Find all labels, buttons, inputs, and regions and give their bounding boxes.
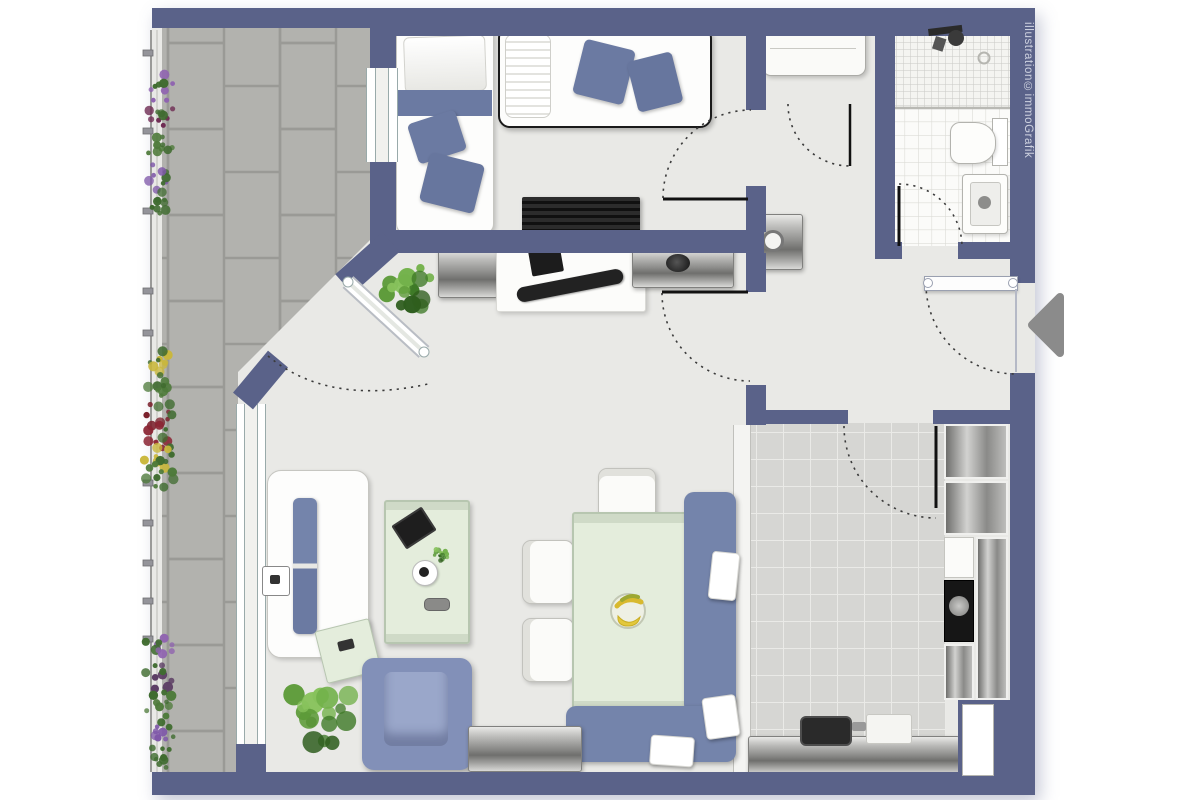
flower-box-cluster bbox=[149, 70, 175, 103]
flower-box-cluster bbox=[149, 745, 172, 770]
flora-layer bbox=[140, 70, 449, 770]
potted-plant-icon bbox=[379, 264, 435, 314]
entrance-door-arc bbox=[926, 284, 1016, 374]
entrance-hinge bbox=[924, 279, 933, 288]
terrace-door-arc bbox=[268, 356, 428, 391]
potted-plant-icon bbox=[283, 684, 358, 753]
flower-box-cluster bbox=[141, 662, 174, 692]
kitchen-door-arc bbox=[844, 426, 936, 518]
bathroom-door-arc bbox=[899, 184, 962, 247]
wall-diagonal-lower bbox=[243, 359, 278, 401]
fruit-bowl bbox=[611, 594, 645, 628]
watermark-text: illustration©immoGrafik bbox=[1012, 22, 1034, 272]
closet-door-arc bbox=[788, 104, 850, 166]
flower-box-cluster bbox=[145, 106, 176, 128]
door-leaves bbox=[662, 104, 936, 508]
flower-box-cluster bbox=[151, 718, 176, 741]
bedroom-door-arc bbox=[663, 110, 751, 198]
entrance-arrow-icon bbox=[1032, 297, 1060, 353]
flower-box-cluster bbox=[144, 690, 176, 720]
floor-plan: illustration©immoGrafik bbox=[0, 0, 1200, 800]
potted-plant-icon bbox=[433, 547, 449, 563]
living-door-arc bbox=[662, 293, 750, 381]
shower-fixture-icon bbox=[928, 25, 990, 64]
entrance-hinge bbox=[1009, 279, 1018, 288]
